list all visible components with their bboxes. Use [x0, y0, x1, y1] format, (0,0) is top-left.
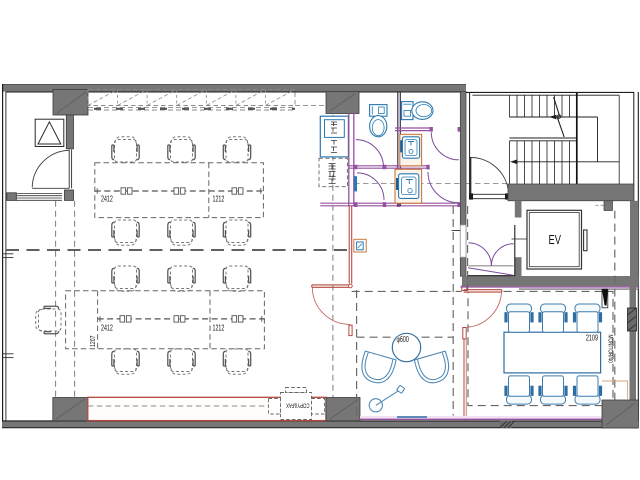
svg-text:φ600: φ600	[397, 336, 410, 344]
svg-text:1207: 1207	[89, 335, 97, 347]
svg-text:2412: 2412	[101, 196, 113, 204]
svg-text:MONITOR/40: MONITOR/40	[606, 335, 613, 363]
svg-text:2109: 2109	[586, 335, 598, 343]
svg-text:COPY&FAX: COPY&FAX	[286, 401, 310, 408]
svg-text:1212: 1212	[213, 196, 225, 204]
svg-text:EV: EV	[549, 233, 562, 247]
svg-text:1212: 1212	[213, 325, 225, 333]
svg-text:2412: 2412	[101, 325, 113, 333]
